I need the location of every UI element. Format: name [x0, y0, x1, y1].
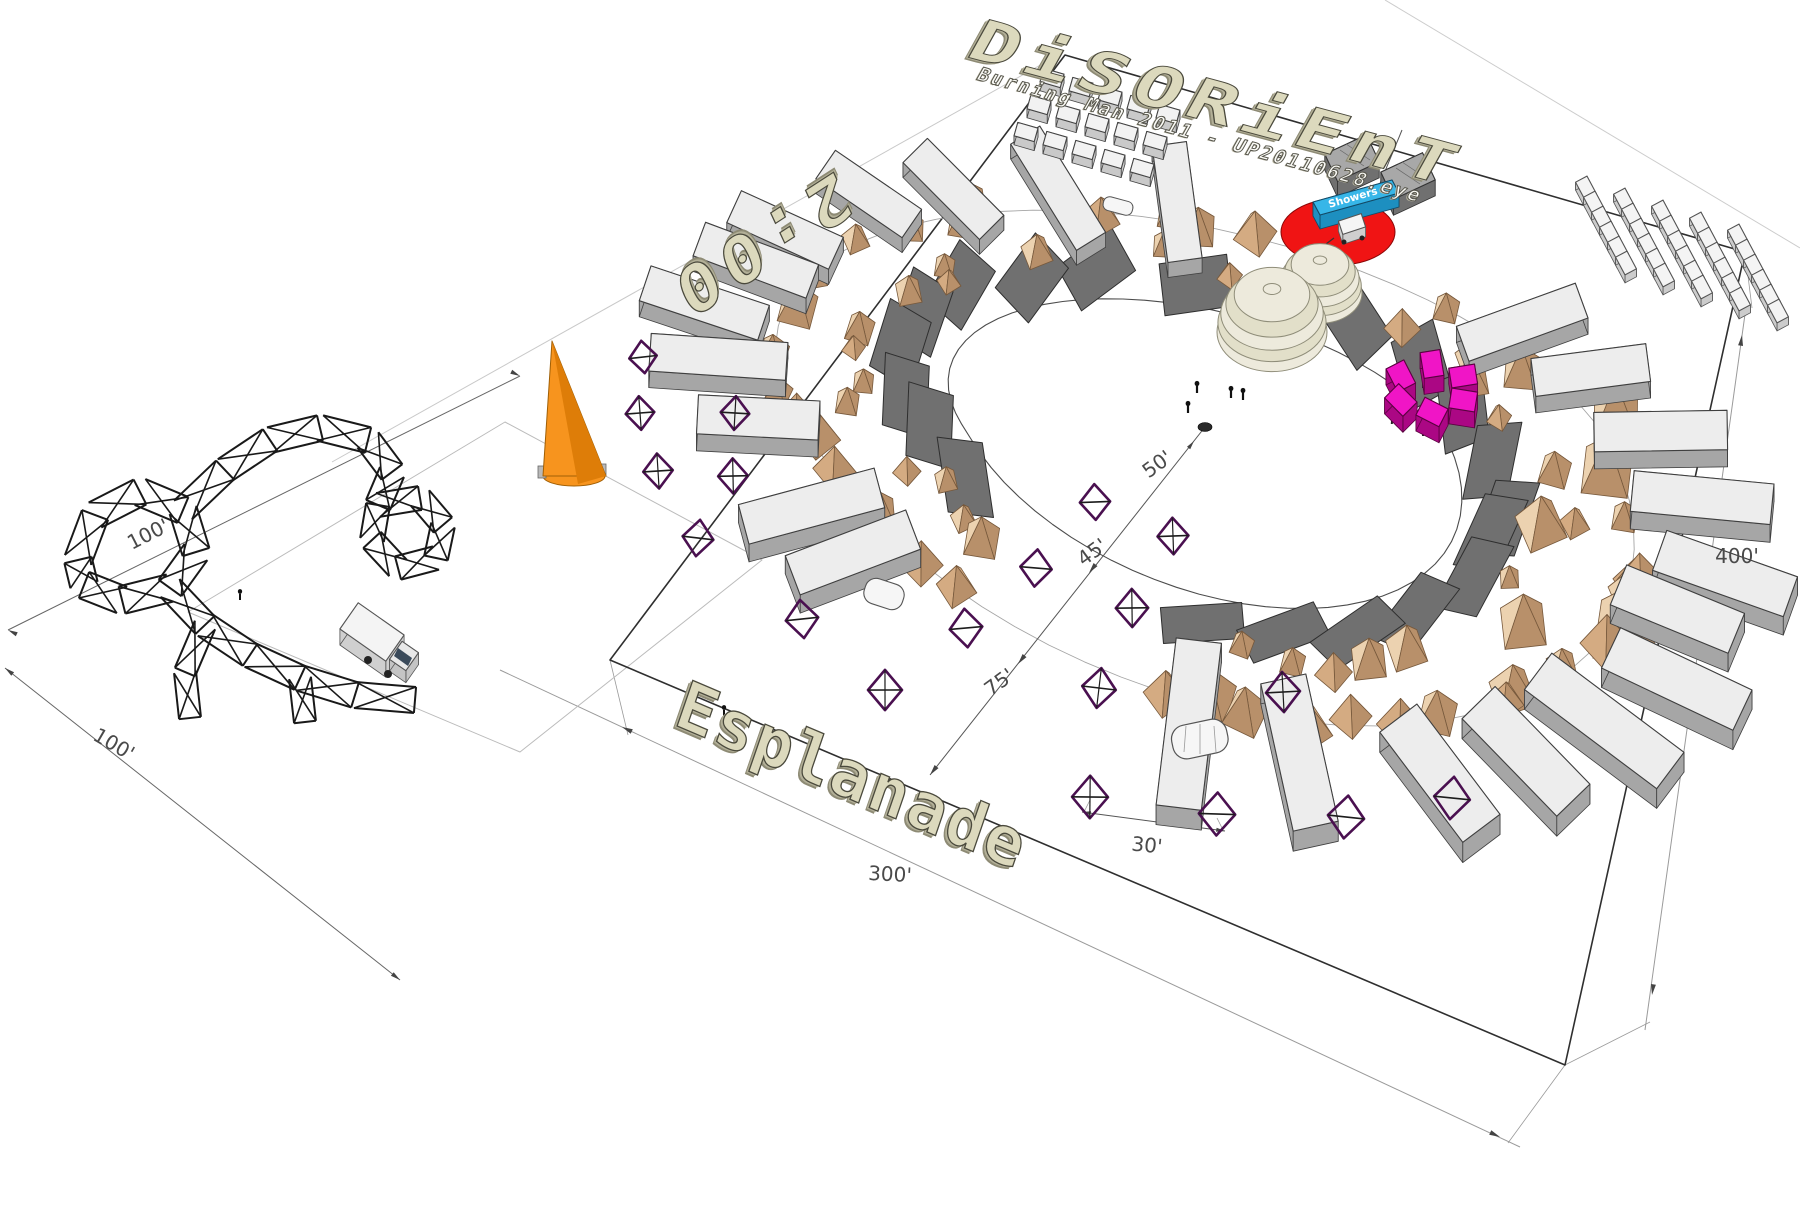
sketchup-viewport[interactable]: DiSORiEnT Burning Man 2011 - UP20110628.… — [0, 0, 1800, 1231]
dim-label-30ft: 30' — [1130, 831, 1163, 858]
dim-label-400ft: 400' — [1715, 544, 1759, 568]
dim-label-300ft: 300' — [868, 861, 913, 887]
site-plan-scene — [0, 0, 1800, 1231]
